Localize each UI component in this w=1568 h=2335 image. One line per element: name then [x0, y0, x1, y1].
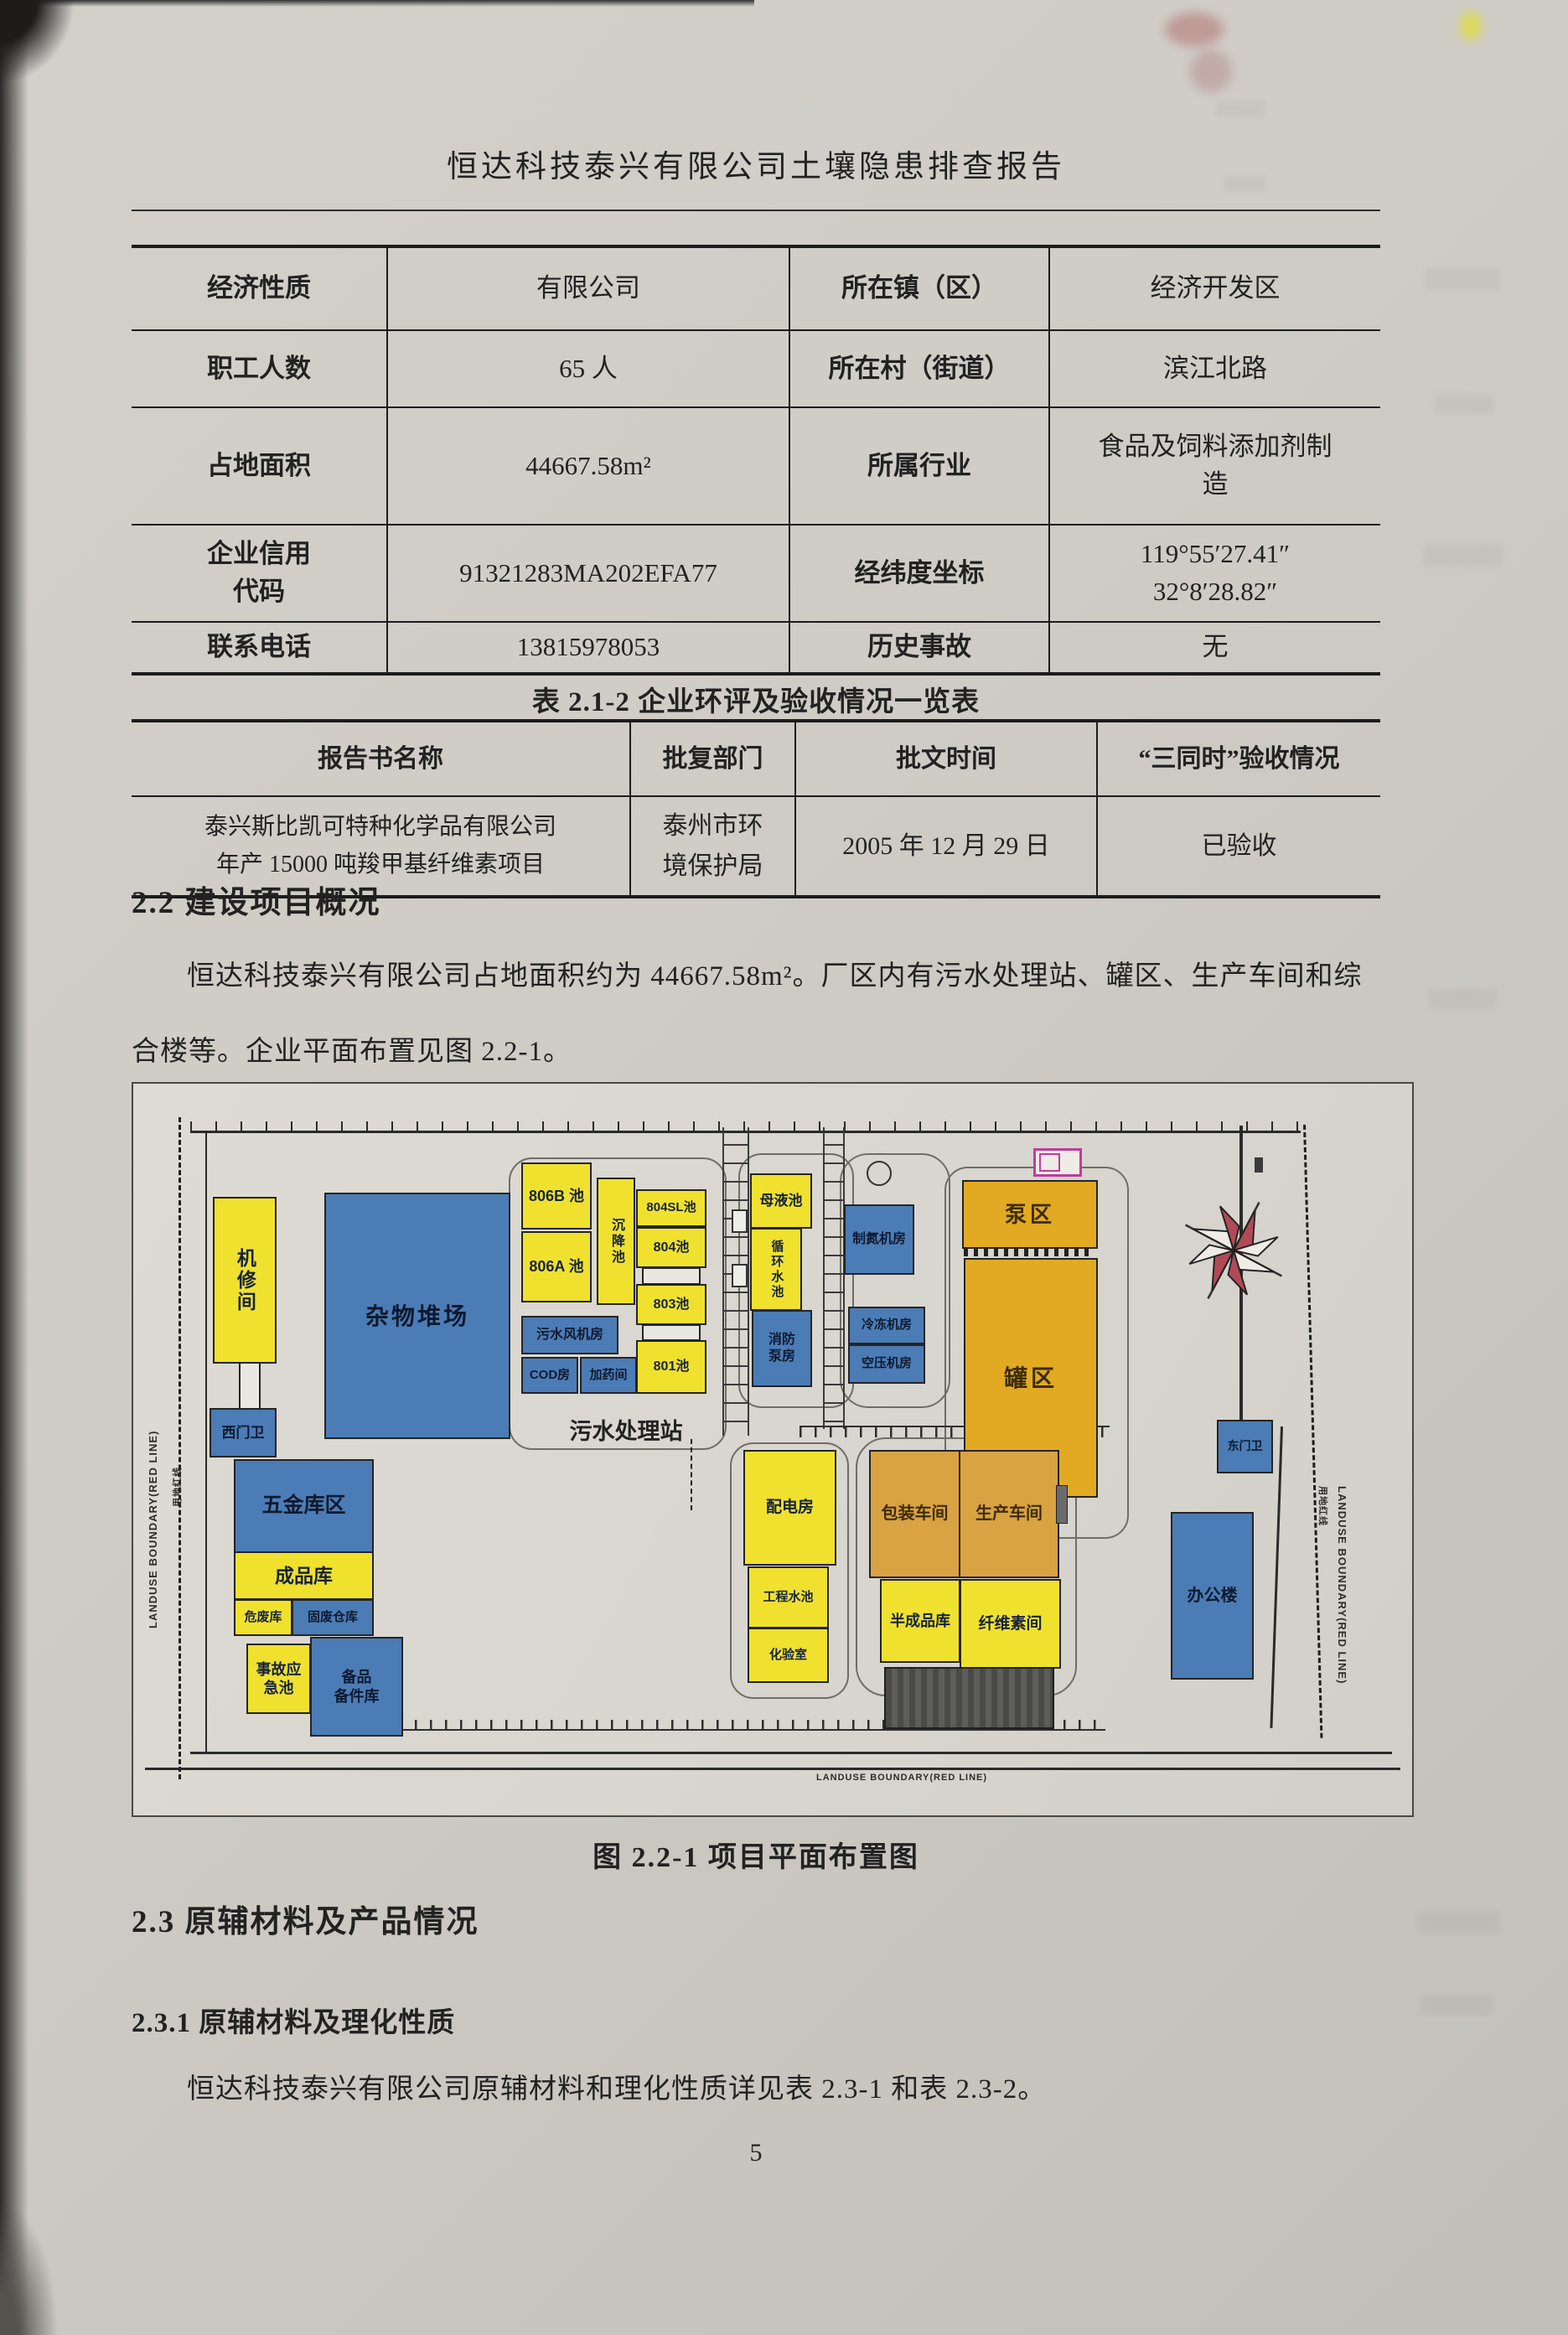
- pond-803: 803池: [636, 1284, 706, 1325]
- section-2-3-paragraph: 恒达科技泰兴有限公司原辅材料和理化性质详见表 2.3-1 和表 2.3-2。: [132, 2052, 1384, 2127]
- west-boundary-dashed-line: [179, 1117, 181, 1779]
- approval-table: 报告书名称 批复部门 批文时间 “三同时”验收情况 泰兴斯比凯可特种化学品有限公…: [132, 719, 1380, 898]
- approval-table-caption: 表 2.1-2 企业环评及验收情况一览表: [132, 679, 1380, 719]
- west-boundary-label-cn: 用地红线: [170, 1467, 184, 1507]
- cell-value: 91321283MA202EFA77: [387, 525, 789, 622]
- east-boundary-label: LANDUSE BOUNDARY(RED LINE): [1336, 1486, 1348, 1684]
- building-hazwaste-warehouse: 危废库: [234, 1599, 292, 1636]
- cell-value: 13815978053: [387, 622, 789, 674]
- table-row: 职工人数 65 人 所在村（街道） 滨江北路: [132, 330, 1380, 407]
- cell-value: 有限公司: [387, 246, 789, 330]
- scan-edge-top: [0, 0, 754, 7]
- page-number: 5: [132, 2139, 1380, 2167]
- utility-box-2: [642, 1324, 701, 1341]
- cell-dept: 泰州市环 境保护局: [630, 796, 795, 897]
- section-2-2-paragraph: 恒达科技泰兴有限公司占地面积约为 44667.58m²。厂区内有污水处理站、罐区…: [132, 939, 1384, 1090]
- north-mark: [1255, 1157, 1263, 1173]
- section-2-3-heading: 2.3 原辅材料及产品情况: [132, 1896, 479, 1941]
- document-title: 恒达科技泰兴有限公司土壤隐患排查报告: [132, 141, 1380, 186]
- cell-value: 44667.58m²: [387, 407, 789, 525]
- building-sundries-yard: 杂物堆场: [324, 1193, 510, 1439]
- south-boundary-line-2: [145, 1768, 1400, 1770]
- company-info-table: 经济性质 有限公司 所在镇（区） 经济开发区 职工人数 65 人 所在村（街道）…: [132, 245, 1380, 676]
- cell-label: 所在镇（区）: [789, 246, 1049, 330]
- table-row: 经济性质 有限公司 所在镇（区） 经济开发区: [132, 246, 1380, 330]
- plant-layout-figure: LANDUSE BOUNDARY(RED LINE) LANDUSE BOUND…: [132, 1082, 1414, 1817]
- section-2-3-1-heading: 2.3.1 原辅材料及理化性质: [132, 2000, 455, 2040]
- pond-circulating-water: 循环水池: [750, 1228, 802, 1311]
- cell-label: 经纬度坐标: [789, 525, 1049, 622]
- building-production-workshop: 生产车间: [959, 1450, 1059, 1578]
- building-semifinished-warehouse: 半成品库: [880, 1579, 960, 1663]
- dashed-line-small: [691, 1439, 692, 1510]
- scan-corner-dark: [0, 0, 75, 84]
- cell-label: 联系电话: [132, 622, 387, 674]
- table-header-row: 报告书名称 批复部门 批文时间 “三同时”验收情况: [132, 721, 1380, 796]
- scan-edge-shadow: [0, 0, 28, 2335]
- cell-label: 经济性质: [132, 246, 387, 330]
- building-repair-shop: 机修间: [213, 1197, 277, 1364]
- pond-engineering-water: 工程水池: [748, 1566, 829, 1628]
- table-row: 占地面积 44667.58m² 所属行业 食品及饲料添加剂制 造: [132, 407, 1380, 525]
- pond-804sl: 804SL池: [636, 1189, 706, 1227]
- scanned-page: 恒达科技泰兴有限公司土壤隐患排查报告 经济性质 有限公司 所在镇（区） 经济开发…: [0, 0, 1568, 2335]
- pond-806a: 806A 池: [521, 1231, 592, 1302]
- loading-bay-marker: [1033, 1148, 1082, 1177]
- cell-value: 119°55′27.41″ 32°8′28.82″: [1049, 525, 1380, 622]
- column-header: 报告书名称: [132, 721, 630, 796]
- cell-label: 所属行业: [789, 407, 1049, 525]
- pond-mother-liquor: 母液池: [750, 1173, 812, 1229]
- east-boundary-dashed-line: [1303, 1125, 1322, 1738]
- column-header: 批复部门: [630, 721, 795, 796]
- table-row: 联系电话 13815978053 历史事故 无: [132, 622, 1380, 674]
- building-power-distribution: 配电房: [743, 1450, 836, 1566]
- workshop-annex: [1056, 1485, 1068, 1524]
- cell-value: 无: [1049, 622, 1380, 674]
- cell-status: 已验收: [1097, 796, 1380, 897]
- cell-label: 企业信用 代码: [132, 525, 387, 622]
- scan-corner-dark-bottom: [0, 2201, 59, 2335]
- west-inner-fence: [205, 1131, 207, 1753]
- building-hardware-warehouse: 五金库区: [234, 1459, 374, 1553]
- cell-value: 经济开发区: [1049, 246, 1380, 330]
- building-lab: 化验室: [748, 1628, 829, 1683]
- utility-box-3: [732, 1209, 748, 1233]
- section-2-2-heading: 2.2 建设项目概况: [132, 877, 381, 922]
- cell-date: 2005 年 12 月 29 日: [795, 796, 1097, 897]
- utility-box-4: [732, 1264, 748, 1287]
- building-solidwaste-warehouse: 固废仓库: [292, 1599, 374, 1636]
- building-emergency-pool: 事故应 急池: [246, 1644, 311, 1714]
- building-air-compressor-room: 空压机房: [848, 1344, 925, 1384]
- figure-caption: 图 2.2-1 项目平面布置图: [132, 1834, 1380, 1875]
- building-east-gatehouse: 东门卫: [1217, 1420, 1273, 1473]
- building-cod-room: COD房: [521, 1357, 578, 1394]
- cell-value: 食品及饲料添加剂制 造: [1049, 407, 1380, 525]
- building-packing-workshop: 包装车间: [869, 1450, 960, 1578]
- area-pump: 泵区: [962, 1180, 1098, 1249]
- building-west-gatehouse: 西门卫: [210, 1408, 277, 1457]
- west-boundary-label: LANDUSE BOUNDARY(RED LINE): [147, 1431, 159, 1628]
- building-sewage-blower-room: 污水风机房: [521, 1316, 618, 1354]
- building-cellulose-workshop: 纤维素间: [960, 1579, 1061, 1669]
- cell-label: 占地面积: [132, 407, 387, 525]
- cell-label: 所在村（街道）: [789, 330, 1049, 407]
- cell-label: 历史事故: [789, 622, 1049, 674]
- building-nitrogen-room: 制氮机房: [844, 1204, 914, 1275]
- hatched-area: [884, 1667, 1054, 1729]
- east-boundary-label-cn: 用地红线: [1317, 1486, 1330, 1526]
- red-smudge: [1165, 13, 1224, 46]
- yellow-mark: [1460, 12, 1482, 40]
- building-dosing-room: 加药间: [580, 1357, 637, 1394]
- pond-804: 804池: [636, 1227, 706, 1268]
- south-boundary-label: LANDUSE BOUNDARY(RED LINE): [816, 1773, 987, 1783]
- south-boundary-line-1: [190, 1752, 1392, 1754]
- column-header: “三同时”验收情况: [1097, 721, 1380, 796]
- manhole-circle: [867, 1161, 892, 1186]
- pipe-rack-vertical-2: [823, 1127, 845, 1429]
- building-finished-goods-warehouse: 成品库: [234, 1551, 374, 1600]
- building-office: 办公楼: [1171, 1512, 1254, 1680]
- sewage-station-label: 污水处理站: [534, 1413, 718, 1442]
- utility-box: [642, 1267, 701, 1285]
- building-fire-pump-room: 消防 泵房: [752, 1310, 812, 1387]
- pond-806b: 806B 池: [521, 1162, 592, 1230]
- pond-settling: 沉降池: [597, 1178, 635, 1305]
- building-refrigeration-room: 冷冻机房: [848, 1307, 925, 1344]
- column-header: 批文时间: [795, 721, 1097, 796]
- table-row: 企业信用 代码 91321283MA202EFA77 经纬度坐标 119°55′…: [132, 525, 1380, 622]
- cell-value: 65 人: [387, 330, 789, 407]
- cell-value: 滨江北路: [1049, 330, 1380, 407]
- building-spare-parts-warehouse: 备品 备件库: [310, 1637, 403, 1737]
- pipe-strip: [964, 1248, 1093, 1256]
- pond-801: 801池: [636, 1340, 706, 1394]
- cell-label: 职工人数: [132, 330, 387, 407]
- compass-rose-icon: [1179, 1196, 1288, 1305]
- title-rule: [132, 210, 1380, 211]
- red-smudge-2: [1190, 50, 1232, 92]
- corridor: [239, 1362, 261, 1410]
